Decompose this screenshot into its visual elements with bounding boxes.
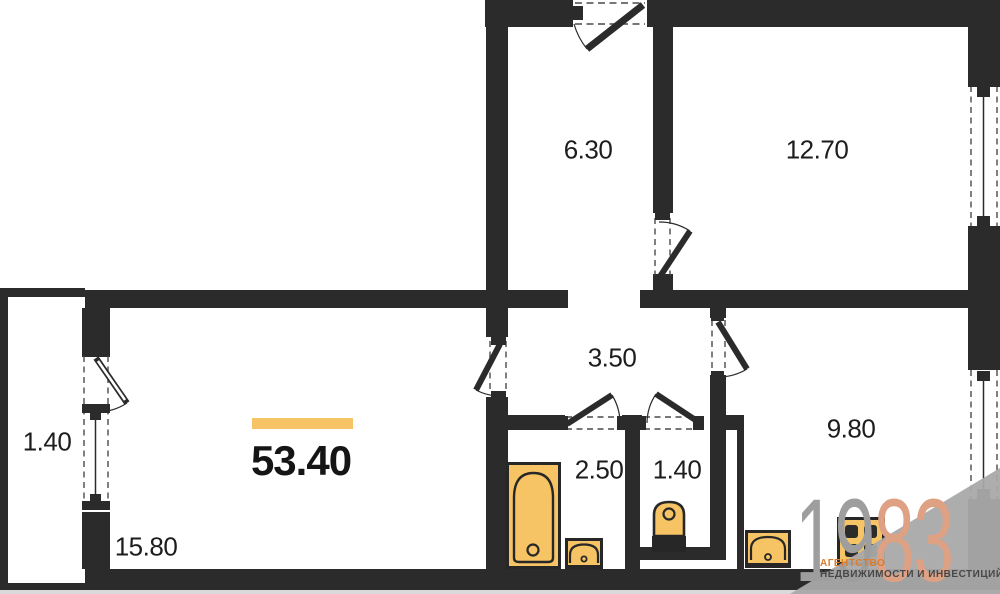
bathroom-sink-icon	[565, 538, 603, 570]
wall-segment	[0, 288, 85, 297]
total-area-accent-bar	[252, 418, 353, 429]
room-area-label-balcony: 1.40	[23, 427, 72, 458]
wall-segment	[653, 27, 673, 213]
room-area-label-bedroom: 12.70	[786, 135, 849, 166]
total-area-label: 53.40	[251, 437, 351, 485]
room-area-label-wc: 1.40	[653, 455, 702, 486]
room-area-label-hall: 6.30	[564, 135, 613, 166]
wall-segment	[82, 512, 110, 569]
entrance-door	[573, 3, 645, 49]
wall-segment	[486, 0, 508, 337]
room-area-label-bathroom: 2.50	[575, 455, 624, 486]
wall-segment	[508, 415, 565, 430]
kitchen-sink-icon	[745, 530, 791, 568]
wall-segment	[486, 397, 508, 569]
bathroom-door	[557, 395, 628, 430]
room-area-label-corridor: 3.50	[588, 343, 637, 374]
wall-segment	[968, 234, 1000, 362]
wall-segment	[622, 415, 642, 430]
wall-segment	[0, 583, 85, 590]
room-area-label-kitchen: 9.80	[827, 414, 876, 445]
wall-segment	[640, 290, 1000, 308]
wall-segment	[710, 375, 726, 560]
wall-segment	[710, 415, 744, 430]
toilet-icon	[650, 498, 688, 554]
watermark-agency-line1: АГЕНТСТВО	[820, 558, 1000, 569]
balcony-door	[82, 348, 127, 503]
kitchen-door	[711, 312, 747, 380]
bedroom-door	[655, 211, 690, 283]
wall-segment	[968, 27, 1000, 79]
floor-plan: 6.30 12.70 3.50 1.40 15.80 2.50 1.40 9.8…	[0, 0, 1000, 594]
bedroom-window	[968, 79, 1000, 234]
wc-door	[635, 394, 704, 430]
wall-segment	[653, 274, 673, 290]
wall-segment	[710, 308, 726, 318]
wall-segment	[647, 0, 1000, 27]
wall-segment	[82, 308, 110, 352]
room-area-label-living: 15.80	[115, 532, 178, 563]
balcony-window	[82, 404, 110, 510]
wall-segment	[85, 290, 568, 308]
watermark-agency-line2: НЕДВИЖИМОСТИ И ИНВЕСТИЦИЙ	[820, 569, 1000, 580]
watermark-agency-text: АГЕНТСТВО НЕДВИЖИМОСТИ И ИНВЕСТИЦИЙ	[820, 558, 1000, 580]
wall-segment	[0, 288, 8, 590]
living-room-door	[476, 336, 506, 400]
wall-segment	[737, 430, 744, 569]
bathtub-icon	[506, 462, 561, 569]
kitchen-window	[968, 362, 1000, 507]
